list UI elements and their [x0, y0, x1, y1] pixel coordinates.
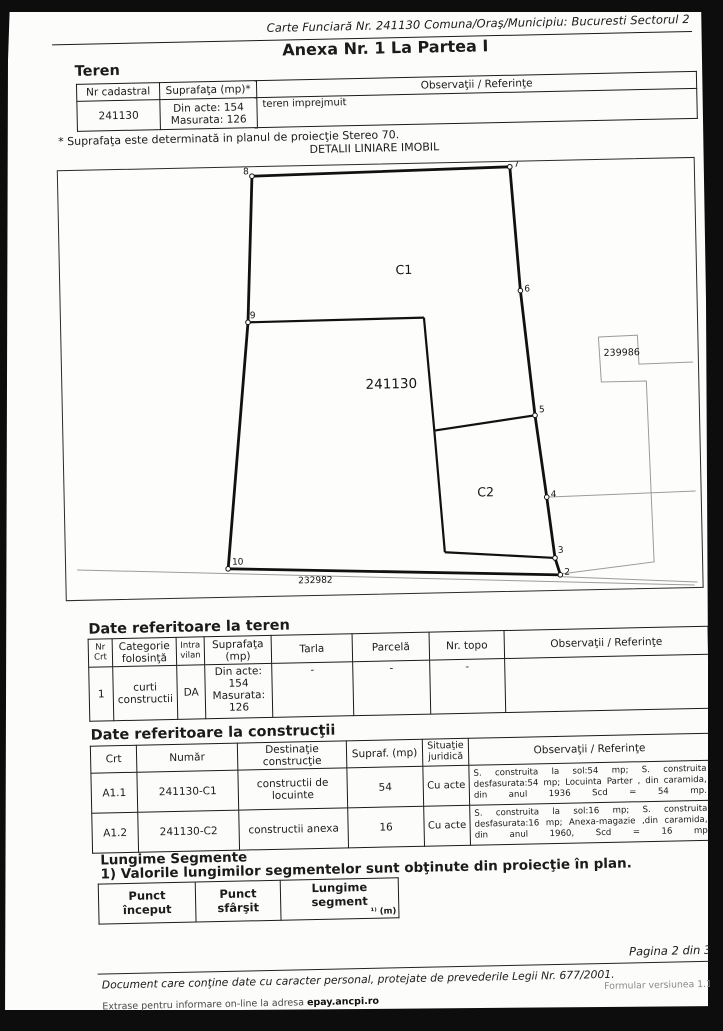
cell-observatii: S. construita la sol:16 mp; S. construit… — [470, 800, 713, 845]
building-lines — [248, 315, 555, 564]
cell-observatii — [505, 654, 710, 712]
parcel-number-label: 241130 — [365, 376, 417, 393]
cell-intravilan: DA — [177, 665, 206, 720]
col-nr-crt: NrCrt — [88, 639, 113, 667]
col-numar: Număr — [136, 743, 238, 772]
point-labels: 8 7 6 5 4 3 2 10 9 — [224, 159, 570, 585]
cell-parcela: - — [353, 660, 431, 716]
parcel-map-svg: 8 7 6 5 4 3 2 10 9 C1 241130 C2 239986 2… — [58, 158, 703, 600]
parcel-diagram: 8 7 6 5 4 3 2 10 9 C1 241130 C2 239986 2… — [57, 157, 704, 601]
cell-situatie: Cu acte — [424, 805, 471, 846]
teren-detail-row: 1 curticonstructii DA Din acte:154 Masur… — [89, 654, 710, 721]
road-parcel-label: 232982 — [298, 576, 333, 587]
scan-border-top — [0, 0, 723, 12]
point-label-2: 2 — [564, 568, 570, 578]
suprafata-masurata: Masurata: 126 — [171, 113, 247, 127]
neighbor-boundary-lines — [72, 334, 697, 598]
teren-detail-table: NrCrt Categoriefolosinţă Intravilan Supr… — [88, 626, 711, 722]
cell-numar: 241130-C1 — [137, 770, 239, 812]
teren-col-suprafata: Suprafaţa (mp)* — [159, 81, 256, 100]
building-c2-label: C2 — [477, 484, 494, 499]
teren-suprafata-cell: Din acte: 154 Masurata: 126 — [160, 98, 258, 130]
col-tarla: Tarla — [271, 634, 353, 664]
cell-observatii: S. construita la sol:54 mp; S. construit… — [469, 760, 712, 805]
section-heading-teren: Teren — [75, 63, 120, 80]
col-observatii: Observaţii / Referinţe — [504, 626, 709, 658]
document-content: Carte Funciară Nr. 241130 Comuna/Oraş/Mu… — [0, 0, 723, 1031]
cell-nr-topo: - — [430, 659, 506, 715]
cell-categorie: curticonstructii — [113, 665, 178, 720]
cell-crt: A1.1 — [91, 772, 138, 813]
neighbor-parcel-label: 239986 — [603, 347, 639, 359]
boundary-points — [218, 164, 563, 585]
point-label-9: 9 — [250, 311, 256, 321]
constructii-table: Crt Număr Destinaţieconstrucţie Supraf. … — [90, 733, 713, 854]
cell-crt: A1.2 — [92, 812, 139, 853]
point-label-10: 10 — [232, 557, 244, 567]
col-destinatie: Destinaţieconstrucţie — [237, 741, 347, 770]
segmente-table: Punctînceput Punctsfârşit Lungime segmen… — [98, 877, 400, 924]
teren-nr-cadastral: 241130 — [77, 100, 161, 132]
teren-col-nr-cadastral: Nr cadastral — [76, 83, 159, 102]
col-punct-sfarsit: Punctsfârşit — [195, 880, 281, 921]
col-parcela: Parcelă — [352, 632, 430, 662]
col-suprafata: Suprafaţa(mp) — [204, 635, 272, 664]
point-label-3: 3 — [558, 546, 564, 556]
point-label-5: 5 — [539, 405, 545, 415]
cell-suprafata: Din acte:154 Masurata:126 — [205, 663, 273, 718]
col-punct-inceput: Punctînceput — [98, 882, 196, 924]
cell-supraf: 16 — [348, 806, 425, 848]
col-lungime-segment: Lungime segment¹⁾ (m) — [280, 878, 399, 920]
point-label-4: 4 — [551, 490, 557, 500]
teren-table: Nr cadastral Suprafaţa (mp)* Observaţii … — [76, 71, 698, 132]
parcel-241130-boundary — [220, 166, 560, 582]
col-crt: Crt — [90, 745, 137, 773]
col-categorie: Categoriefolosinţă — [112, 637, 177, 666]
cell-tarla: - — [272, 662, 354, 718]
cell-supraf: 54 — [347, 766, 424, 808]
col-intravilan: Intravilan — [176, 637, 205, 666]
col-supraf: Supraf. (mp) — [346, 739, 423, 768]
cell-nr: 1 — [89, 667, 114, 721]
point-label-7: 7 — [514, 160, 520, 170]
building-c1-label: C1 — [395, 262, 412, 277]
point-label-6: 6 — [524, 284, 530, 294]
epay-site: epay.ancpi.ro — [307, 996, 379, 1009]
cell-numar: 241130-C2 — [138, 810, 240, 852]
cell-destinatie: constructii delocuinte — [238, 768, 348, 810]
col-situatie: Situaţiejuridică — [422, 738, 469, 766]
point-label-8: 8 — [243, 167, 249, 177]
cell-destinatie: constructii anexa — [239, 808, 349, 850]
col-nr-topo: Nr. topo — [429, 631, 505, 661]
page-number: Pagina 2 din 3 — [409, 943, 711, 963]
cell-situatie: Cu acte — [423, 765, 470, 806]
